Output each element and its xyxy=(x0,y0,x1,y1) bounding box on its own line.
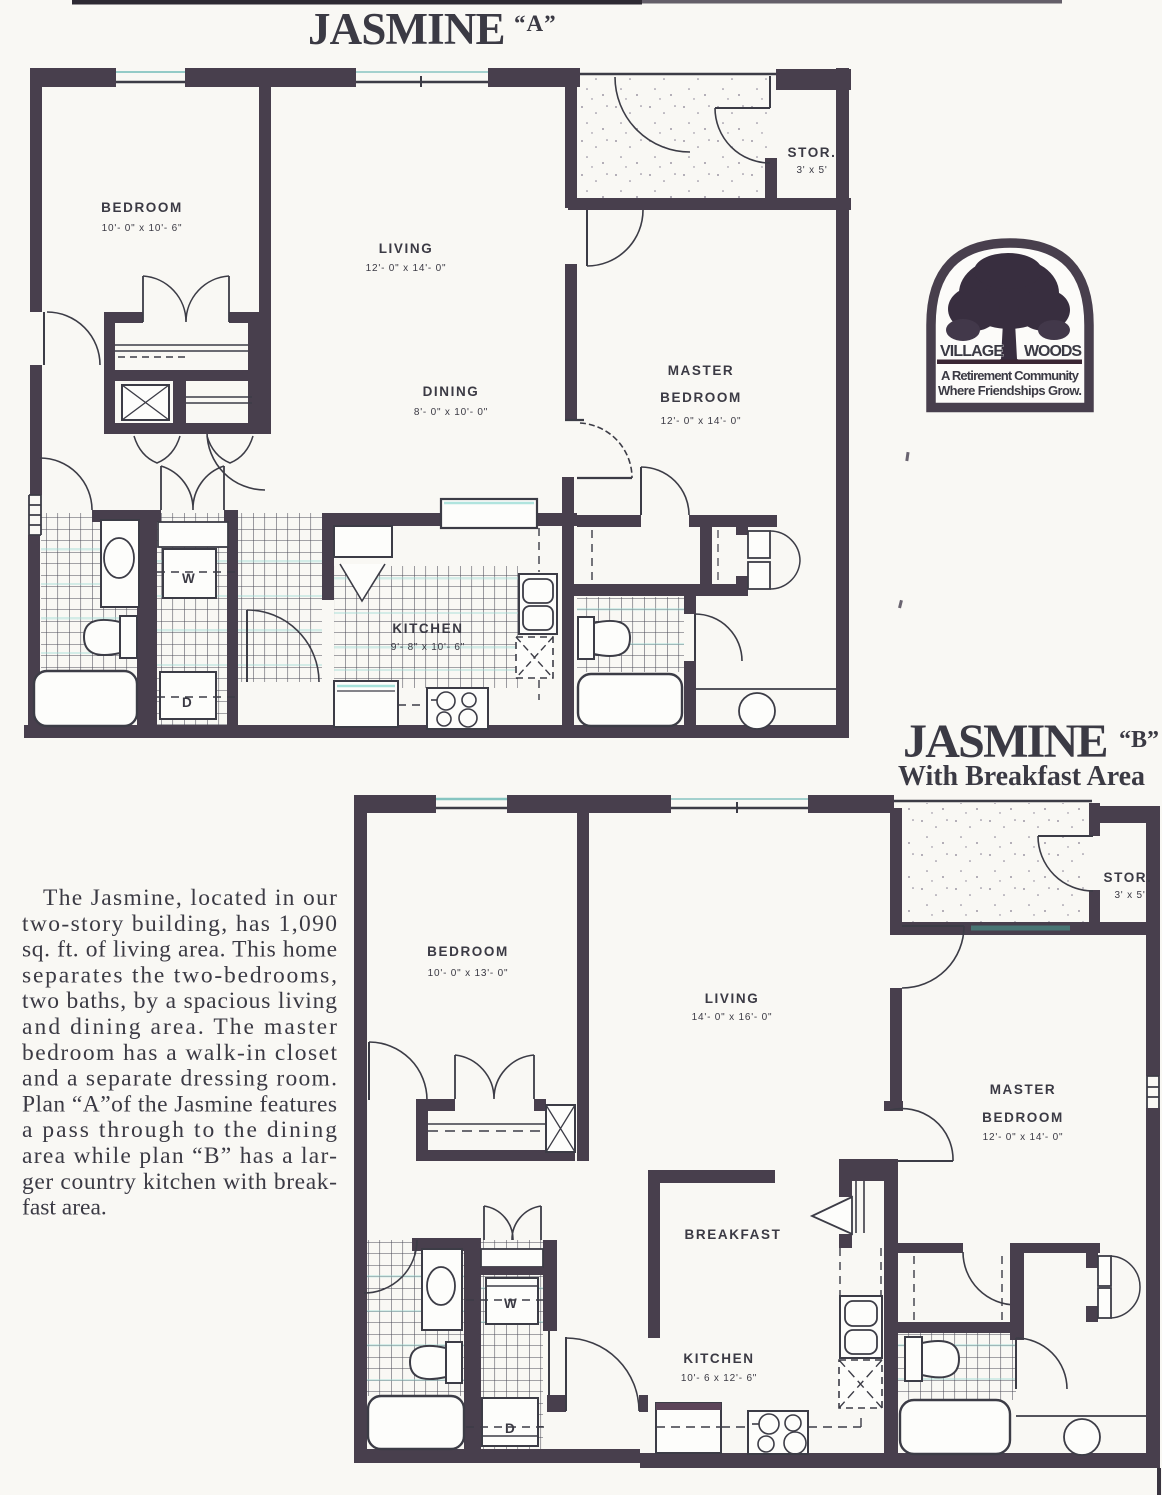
svg-text:“B”: “B” xyxy=(1119,727,1159,753)
svg-text:separates the two-bedrooms,: separates the two-bedrooms, xyxy=(22,962,337,988)
svg-text:12'- 0" x 14'- 0": 12'- 0" x 14'- 0" xyxy=(366,263,447,274)
svg-text:KITCHEN: KITCHEN xyxy=(683,1351,754,1366)
svg-text:VILLAGE: VILLAGE xyxy=(940,343,1004,360)
svg-text:bedroom has a walk-in closet: bedroom has a walk-in closet xyxy=(22,1040,337,1066)
svg-text:D: D xyxy=(505,1421,516,1436)
svg-text:fast area.: fast area. xyxy=(22,1195,107,1221)
svg-text:KITCHEN: KITCHEN xyxy=(392,621,463,636)
svg-text:BEDROOM: BEDROOM xyxy=(660,390,742,405)
svg-text:sq. ft. of living area. This h: sq. ft. of living area. This home xyxy=(22,937,337,963)
svg-text:W: W xyxy=(504,1296,518,1311)
svg-text:STOR.: STOR. xyxy=(1103,870,1152,885)
svg-text:With Breakfast Area: With Breakfast Area xyxy=(898,761,1145,792)
svg-text:MASTER: MASTER xyxy=(990,1082,1057,1097)
svg-text:3' x 5': 3' x 5' xyxy=(1114,890,1145,901)
svg-text:“A”: “A” xyxy=(514,11,557,36)
svg-text:MASTER: MASTER xyxy=(668,363,735,378)
svg-text:10'- 0" x 13'- 0": 10'- 0" x 13'- 0" xyxy=(428,968,509,979)
svg-text:and dining area. The master: and dining area. The master xyxy=(22,1014,337,1040)
svg-text:12'- 0" x 14'- 0": 12'- 0" x 14'- 0" xyxy=(661,416,742,427)
svg-text:The Jasmine, located in our: The Jasmine, located in our xyxy=(43,885,337,911)
svg-text:area while plan “B” has a lar-: area while plan “B” has a lar- xyxy=(22,1143,337,1169)
svg-text:8'- 0" x 10'- 0": 8'- 0" x 10'- 0" xyxy=(414,407,488,418)
svg-text:10'- 6 x 12'- 6": 10'- 6 x 12'- 6" xyxy=(681,1373,757,1384)
svg-text:BEDROOM: BEDROOM xyxy=(427,944,509,959)
svg-text:3' x 5': 3' x 5' xyxy=(796,165,827,176)
svg-text:10'- 0" x 10'- 6": 10'- 0" x 10'- 6" xyxy=(102,223,183,234)
svg-text:14'- 0" x 16'- 0": 14'- 0" x 16'- 0" xyxy=(692,1012,773,1023)
svg-text:12'- 0" x 14'- 0": 12'- 0" x 14'- 0" xyxy=(983,1132,1064,1143)
svg-text:a pass through to the dining: a pass through to the dining xyxy=(22,1117,337,1143)
svg-text:A Retirement Community: A Retirement Community xyxy=(941,368,1080,383)
svg-text:and a separate dressing room.: and a separate dressing room. xyxy=(22,1066,337,1092)
svg-text:two-story building, has 1,090: two-story building, has 1,090 xyxy=(22,911,337,937)
svg-text:BEDROOM: BEDROOM xyxy=(101,200,183,215)
svg-text:WOODS: WOODS xyxy=(1024,343,1082,360)
svg-text:LIVING: LIVING xyxy=(705,991,760,1006)
svg-text:BEDROOM: BEDROOM xyxy=(982,1110,1064,1125)
svg-text:LIVING: LIVING xyxy=(379,241,434,256)
svg-text:ger country kitchen with break: ger country kitchen with break- xyxy=(22,1169,337,1195)
svg-text:D: D xyxy=(182,695,193,710)
svg-text:Plan “A”of the Jasmine feature: Plan “A”of the Jasmine features xyxy=(22,1091,337,1117)
svg-text:JASMINE: JASMINE xyxy=(308,4,506,54)
svg-text:two baths, by a spacious livin: two baths, by a spacious living xyxy=(22,988,337,1014)
svg-text:DINING: DINING xyxy=(423,384,480,399)
svg-text:9'- 8" x 10'- 6": 9'- 8" x 10'- 6" xyxy=(391,642,465,653)
svg-text:Where Friendships Grow.: Where Friendships Grow. xyxy=(938,383,1082,398)
svg-text:BREAKFAST: BREAKFAST xyxy=(685,1227,782,1242)
svg-text:STOR.: STOR. xyxy=(787,145,836,160)
svg-text:W: W xyxy=(182,571,196,586)
